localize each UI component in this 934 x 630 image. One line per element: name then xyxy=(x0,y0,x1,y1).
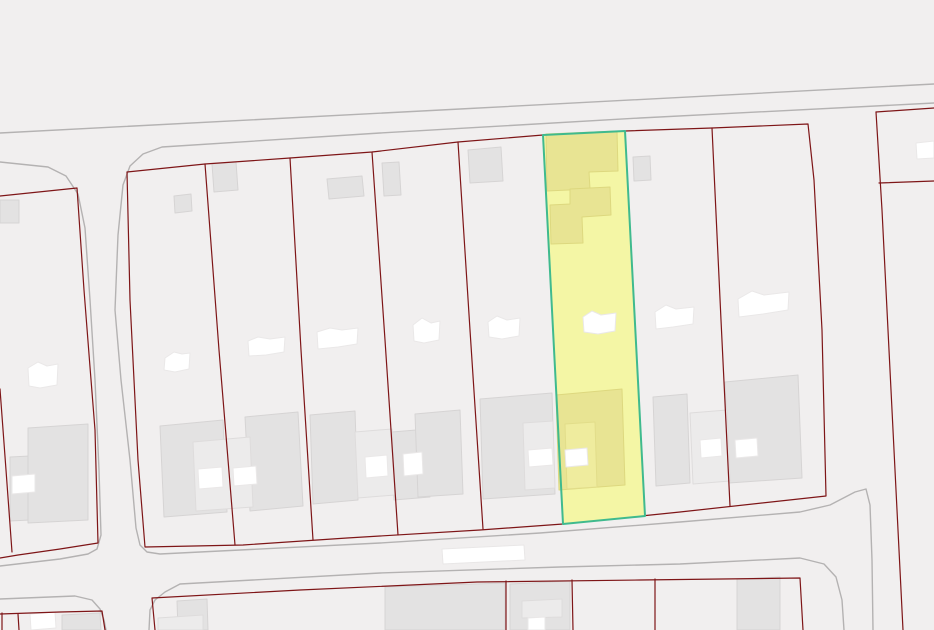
house-parcel-7 xyxy=(655,305,694,329)
house-bottom-left-block xyxy=(30,612,56,630)
building-bottom-strip-d xyxy=(737,577,780,630)
road-markings-layer xyxy=(442,545,525,564)
house-parcel-3 xyxy=(317,328,358,349)
shed-parcel-4 xyxy=(382,162,401,196)
house-right-block xyxy=(916,141,934,159)
right-block-west-edge xyxy=(876,112,903,630)
garage-row-8 xyxy=(725,375,802,483)
map-viewport[interactable] xyxy=(0,0,934,630)
shed-parcel-7 xyxy=(633,156,651,181)
house-parcel-5 xyxy=(488,316,520,339)
house-bottom-strip xyxy=(528,617,545,630)
house-left-block-south xyxy=(12,474,35,494)
shed-parcel-3 xyxy=(327,176,364,199)
garage-house-8 xyxy=(735,438,758,458)
garage-row-3 xyxy=(310,411,358,504)
shed-parcel-5 xyxy=(468,147,503,183)
garage-house-2 xyxy=(233,466,257,486)
annex-bottom-strip-a xyxy=(158,615,203,630)
annex-bottom-strip-c xyxy=(522,599,562,618)
buildings-gray-layer xyxy=(0,147,802,630)
house-parcel-8 xyxy=(738,291,789,317)
shed-parcel-1 xyxy=(174,194,192,213)
house-parcel-4 xyxy=(413,318,440,343)
building-bottom-strip-b xyxy=(385,583,505,630)
garage-house-7 xyxy=(700,438,722,458)
garage-house-4 xyxy=(403,452,423,476)
map-svg[interactable] xyxy=(0,0,934,630)
house-parcel-6 xyxy=(583,311,616,334)
right-block-top-edge xyxy=(876,108,934,112)
building-bottom-left-block xyxy=(62,613,101,630)
white-strip-on-road xyxy=(442,545,525,564)
garage-house-6 xyxy=(565,448,588,467)
garage-house-1 xyxy=(198,467,223,489)
garage-row-7 xyxy=(653,394,690,486)
bottom-center-block-divider-2 xyxy=(572,580,573,630)
garage-house-5 xyxy=(528,448,553,467)
building-left-block-south-b xyxy=(28,424,88,523)
house-parcel-2 xyxy=(248,337,285,356)
house-left-block xyxy=(28,362,58,388)
house-parcel-1 xyxy=(164,352,190,372)
shed-parcel-2 xyxy=(212,162,238,192)
garage-house-3 xyxy=(365,455,388,478)
bottom-left-block-divider xyxy=(18,614,19,630)
top-road-north-edge xyxy=(0,84,934,133)
building-left-block-north xyxy=(0,200,19,223)
right-block-divider xyxy=(879,181,934,183)
garage-row-2 xyxy=(245,412,303,511)
